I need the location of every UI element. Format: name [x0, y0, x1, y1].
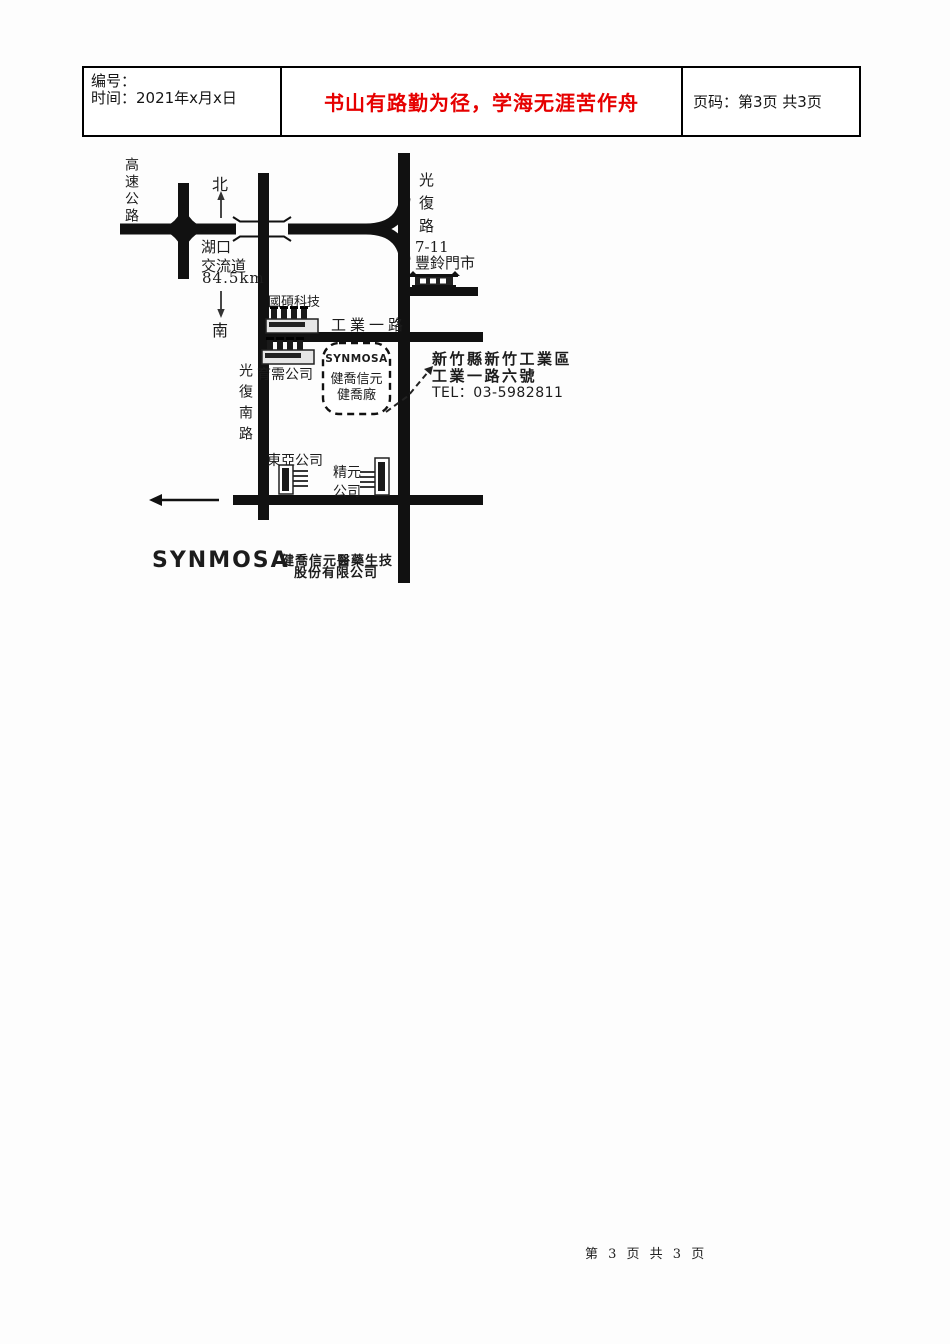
industry-road-label: 工業一路 — [331, 314, 407, 335]
plant-box-line2: 健喬廠 — [323, 384, 390, 403]
guangfu-road-label: 光復路 — [416, 172, 437, 241]
document-page: { "colors": {"slogan_red": "#e60000", "i… — [0, 0, 950, 1344]
yuxu-label: 育需公司 — [257, 364, 313, 384]
address-tel: TEL：03-5982811 — [432, 382, 563, 402]
distance-label: 84.5km — [202, 269, 265, 287]
guoshuo-label: 國碩科技 — [268, 291, 320, 310]
store-icon-7-11 — [408, 271, 460, 289]
factory-icon-guoshuo — [266, 306, 318, 333]
plant-box-brand: SYNMOSA — [323, 353, 390, 365]
seven-eleven-label-line2: 豐鈴門市 — [415, 252, 475, 273]
company-name-line2: 股份有限公司 — [281, 562, 391, 581]
highway-label: 高速公路 — [121, 157, 141, 225]
building-icon-jingyuan — [360, 458, 389, 495]
guangfu-south-road-label: 光復南路 — [235, 363, 255, 447]
synmosa-logo: SYNMOSA — [152, 548, 290, 573]
compass-south-label: 南 — [212, 317, 228, 341]
jingyuan-label-line1: 精元 — [333, 466, 361, 481]
jingyuan-label-line2: 公司 — [333, 481, 361, 501]
guangfu-road — [398, 153, 410, 583]
interchange-label-line1: 湖口 — [201, 240, 231, 255]
map-canvas — [0, 0, 950, 660]
west-arrow-icon — [149, 494, 219, 506]
north-arrow-icon — [217, 191, 224, 218]
compass-north-label: 北 — [212, 171, 228, 195]
south-arrow-icon — [217, 291, 224, 318]
dongya-label: 東亞公司 — [267, 450, 323, 470]
footer-page-number: 第 3 页 共 3 页 — [585, 1243, 707, 1262]
